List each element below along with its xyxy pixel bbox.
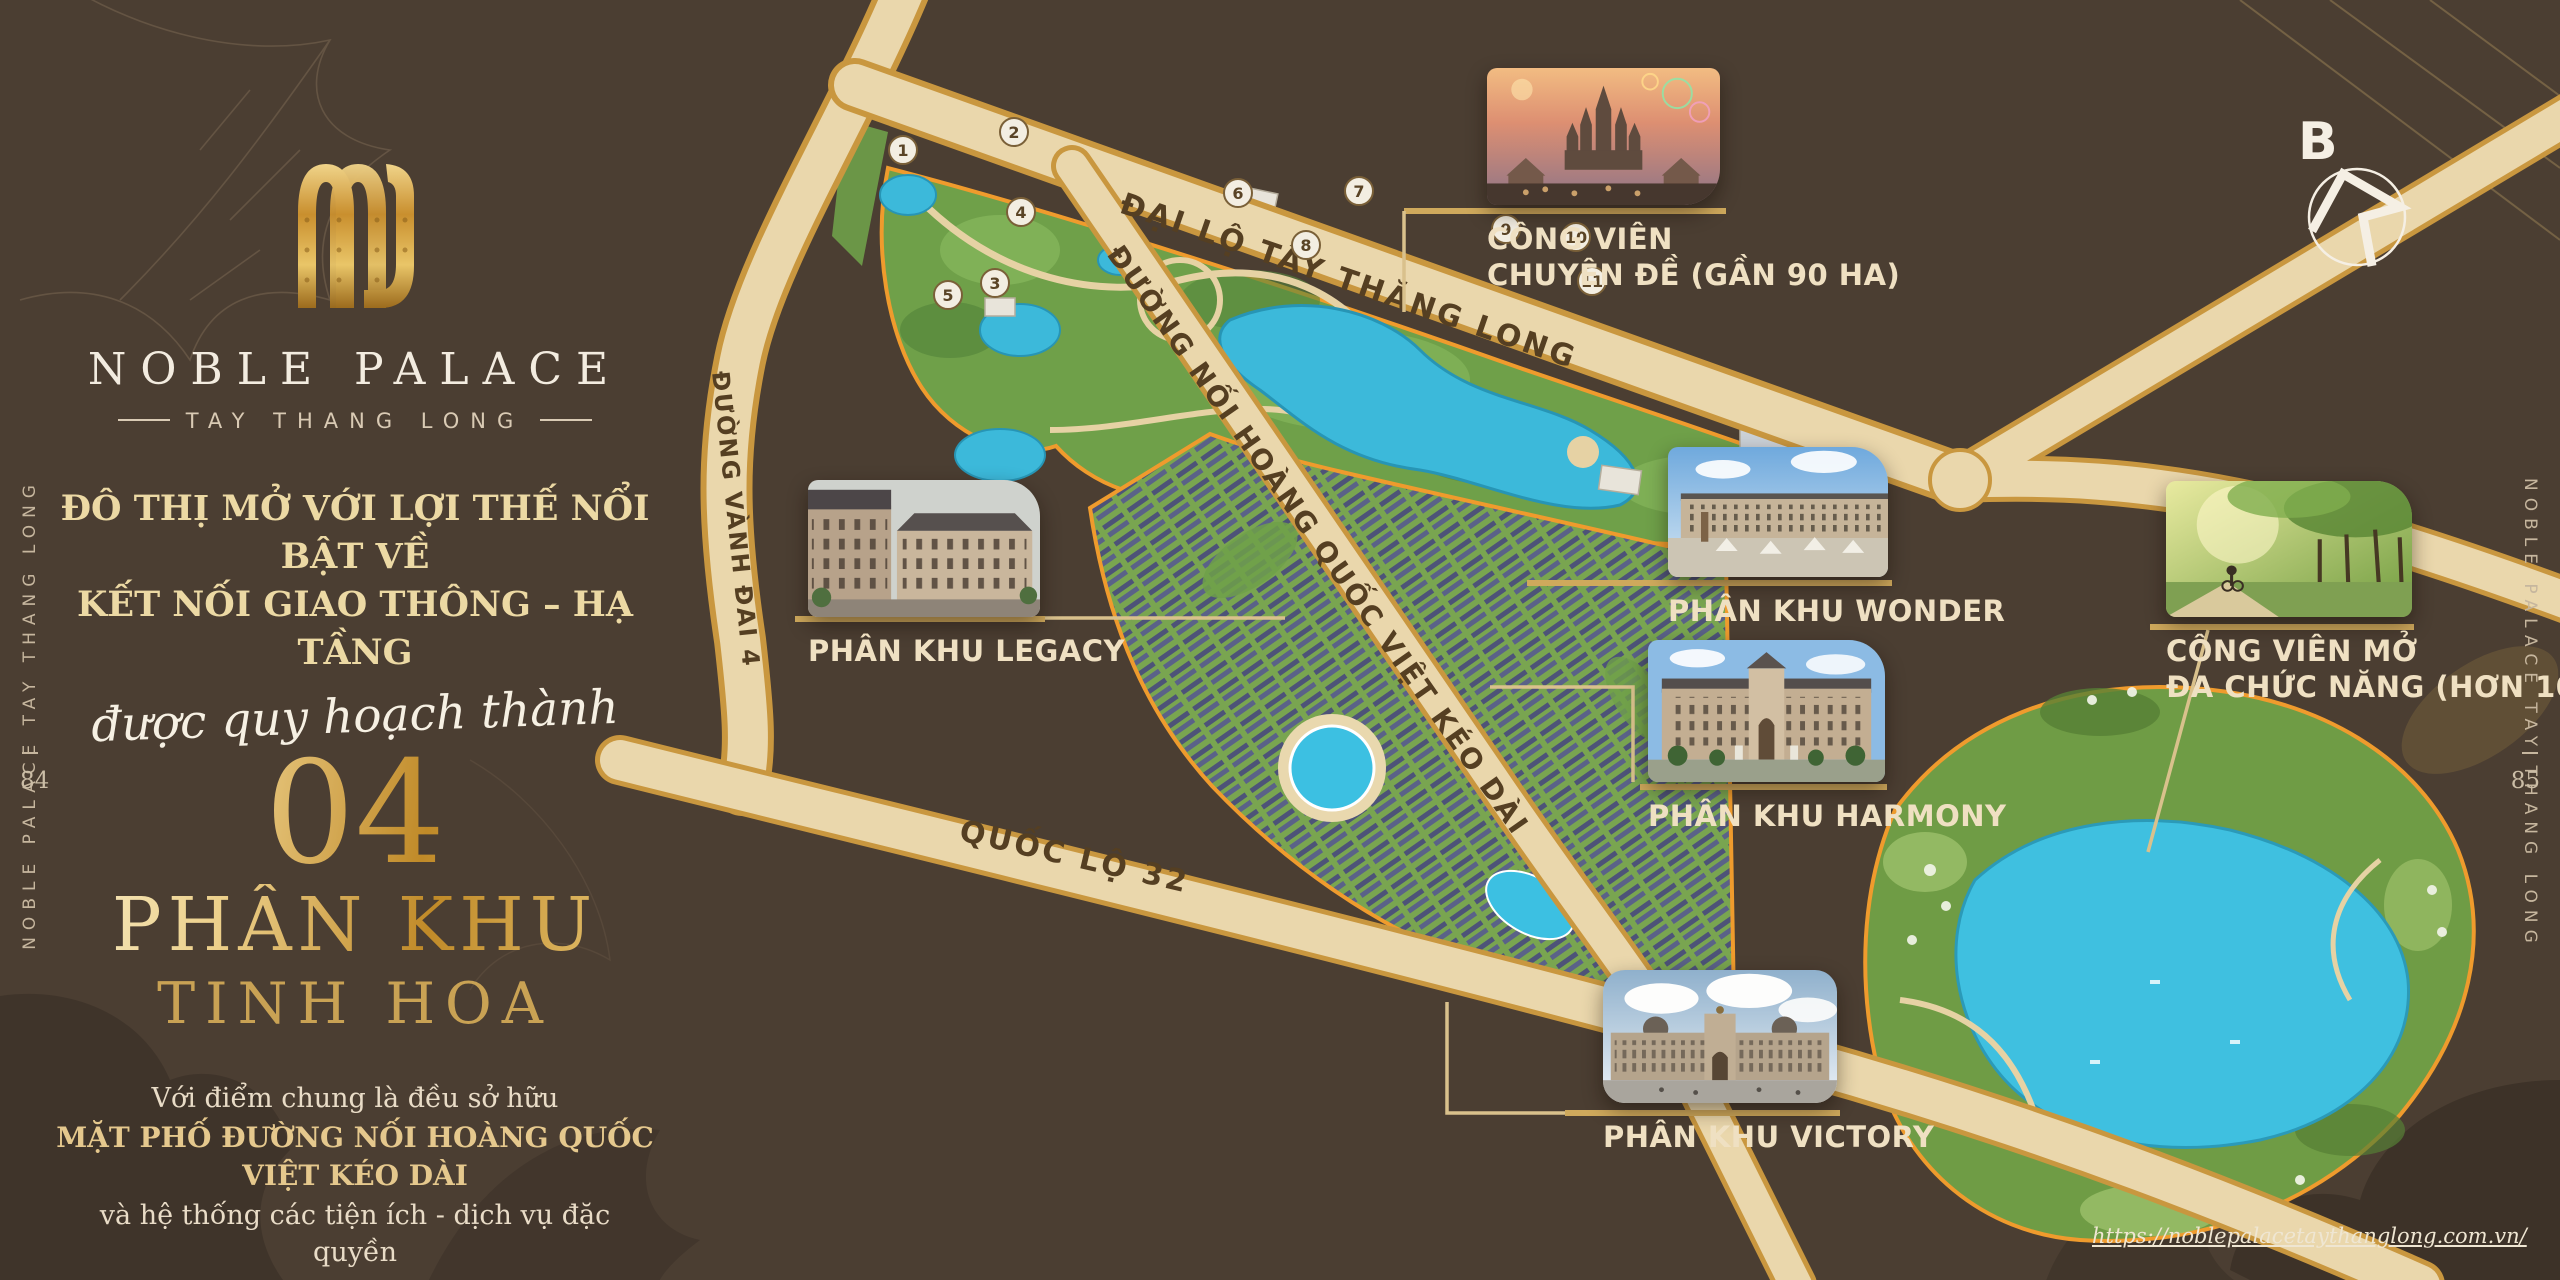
svg-text:6: 6 xyxy=(1232,184,1243,203)
website-link[interactable]: https://noblepalacetaythanglong.com.vn/ xyxy=(2092,1224,2527,1248)
callout-victory-line1: PHÂN KHU VICTORY xyxy=(1603,1119,1934,1155)
marker-2: 2 xyxy=(1000,118,1028,146)
svg-text:8: 8 xyxy=(1300,236,1311,255)
callout-theme-park-line1: CÔNG VIÊN xyxy=(1487,221,1900,257)
left-rail-dash xyxy=(22,752,38,754)
victory-palace-photo xyxy=(1603,970,1837,1103)
theme-park-castle-photo xyxy=(1487,68,1720,205)
open-park-photo xyxy=(2166,481,2412,617)
callout-legacy: PHÂN KHU LEGACY xyxy=(808,480,1125,669)
intro-body: Với điểm chung là đều sở hữu MẶT PHỐ ĐƯỜ… xyxy=(55,1080,655,1271)
svg-text:3: 3 xyxy=(989,274,1000,293)
legacy-buildings-photo xyxy=(808,480,1040,617)
right-page-number: 85 xyxy=(2511,768,2540,794)
brand-tagline: TAY THANG LONG xyxy=(55,409,655,433)
intro-heading: ĐÔ THỊ MỞ VỚI LỢI THẾ NỔI BẬT VỀ KẾT NỐI… xyxy=(55,485,655,677)
marker-6: 6 xyxy=(1224,179,1252,207)
callout-open-park-line2: ĐA CHỨC NĂNG (HƠN 100 HA) xyxy=(2166,669,2560,705)
svg-text:5: 5 xyxy=(942,286,953,305)
brochure-spread: ĐẠI LỘ TÂY THĂNG LONG ĐƯỜNG VÀNH ĐAI 4 Q… xyxy=(0,0,2560,1280)
harmony-palace-photo xyxy=(1648,640,1885,782)
svg-text:4: 4 xyxy=(1015,203,1026,222)
tagline-dash-left xyxy=(118,419,170,421)
right-rail-text: NOBLE PALACE TAY THANG LONG xyxy=(2520,478,2540,950)
callout-wonder: PHÂN KHU WONDER xyxy=(1668,447,2005,629)
big-number-04: 04 xyxy=(55,744,655,884)
marker-7: 7 xyxy=(1345,177,1373,205)
callout-wonder-line1: PHÂN KHU WONDER xyxy=(1668,593,2005,629)
svg-text:1: 1 xyxy=(897,141,908,160)
marker-5: 5 xyxy=(934,281,962,309)
callout-theme-park: CÔNG VIÊN CHUYÊN ĐỀ (GẦN 90 HA) xyxy=(1487,68,1900,293)
right-rail-dash xyxy=(2522,752,2538,754)
callout-theme-park-line2: CHUYÊN ĐỀ (GẦN 90 HA) xyxy=(1487,257,1900,293)
callout-harmony: PHÂN KHU HARMONY xyxy=(1648,640,2007,834)
callout-open-park-label: CÔNG VIÊN MỞ ĐA CHỨC NĂNG (HƠN 100 HA) xyxy=(2166,633,2560,705)
intro-heading-line2: KẾT NỐI GIAO THÔNG – HẠ TẦNG xyxy=(55,581,655,677)
callout-harmony-label: PHÂN KHU HARMONY xyxy=(1648,798,2007,834)
noble-palace-monogram-logo xyxy=(290,150,420,318)
marker-8: 8 xyxy=(1292,231,1320,259)
subheading-phan-khu: PHÂN KHU xyxy=(55,884,655,966)
svg-text:2: 2 xyxy=(1008,123,1019,142)
intro-body-line3: và hệ thống các tiện ích - dịch vụ đặc q… xyxy=(55,1197,655,1271)
callout-open-park: CÔNG VIÊN MỞ ĐA CHỨC NĂNG (HƠN 100 HA) xyxy=(2166,481,2560,705)
callout-wonder-label: PHÂN KHU WONDER xyxy=(1668,593,2005,629)
marker-3: 3 xyxy=(981,269,1009,297)
callout-open-park-line1: CÔNG VIÊN MỞ xyxy=(2166,633,2560,669)
subheading-tinh-hoa: TINH HOA xyxy=(55,972,655,1036)
intro-body-line2: MẶT PHỐ ĐƯỜNG NỐI HOÀNG QUỐC VIỆT KÉO DÀ… xyxy=(55,1119,655,1195)
left-page-number: 84 xyxy=(20,768,49,794)
tagline-dash-right xyxy=(540,419,592,421)
roundabout xyxy=(1567,436,1599,468)
callout-legacy-line1: PHÂN KHU LEGACY xyxy=(808,633,1125,669)
left-rail-text: NOBLE PALACE TAY THANG LONG xyxy=(20,478,40,950)
callout-victory: PHÂN KHU VICTORY xyxy=(1603,970,1934,1155)
brand-tagline-text: TAY THANG LONG xyxy=(186,409,525,433)
callout-legacy-label: PHÂN KHU LEGACY xyxy=(808,633,1125,669)
intro-heading-line1: ĐÔ THỊ MỞ VỚI LỢI THẾ NỔI BẬT VỀ xyxy=(55,485,655,581)
callout-victory-label: PHÂN KHU VICTORY xyxy=(1603,1119,1934,1155)
marker-4: 4 xyxy=(1007,198,1035,226)
brand-name: NOBLE PALACE xyxy=(55,344,655,395)
pond-1 xyxy=(880,175,936,215)
compass-north-label: B xyxy=(2298,112,2338,172)
intro-panel: NOBLE PALACE TAY THANG LONG ĐÔ THỊ MỞ VỚ… xyxy=(55,150,655,1271)
marker-1: 1 xyxy=(889,136,917,164)
pond-4 xyxy=(955,429,1045,481)
callout-harmony-line1: PHÂN KHU HARMONY xyxy=(1648,798,2007,834)
intro-body-line1: Với điểm chung là đều sở hữu xyxy=(55,1080,655,1117)
svg-text:7: 7 xyxy=(1353,182,1364,201)
amenity-pool xyxy=(1290,726,1374,810)
compass-north-indicator: B xyxy=(2290,112,2450,296)
callout-theme-park-label: CÔNG VIÊN CHUYÊN ĐỀ (GẦN 90 HA) xyxy=(1487,221,1900,293)
wonder-plaza-photo xyxy=(1668,447,1888,577)
